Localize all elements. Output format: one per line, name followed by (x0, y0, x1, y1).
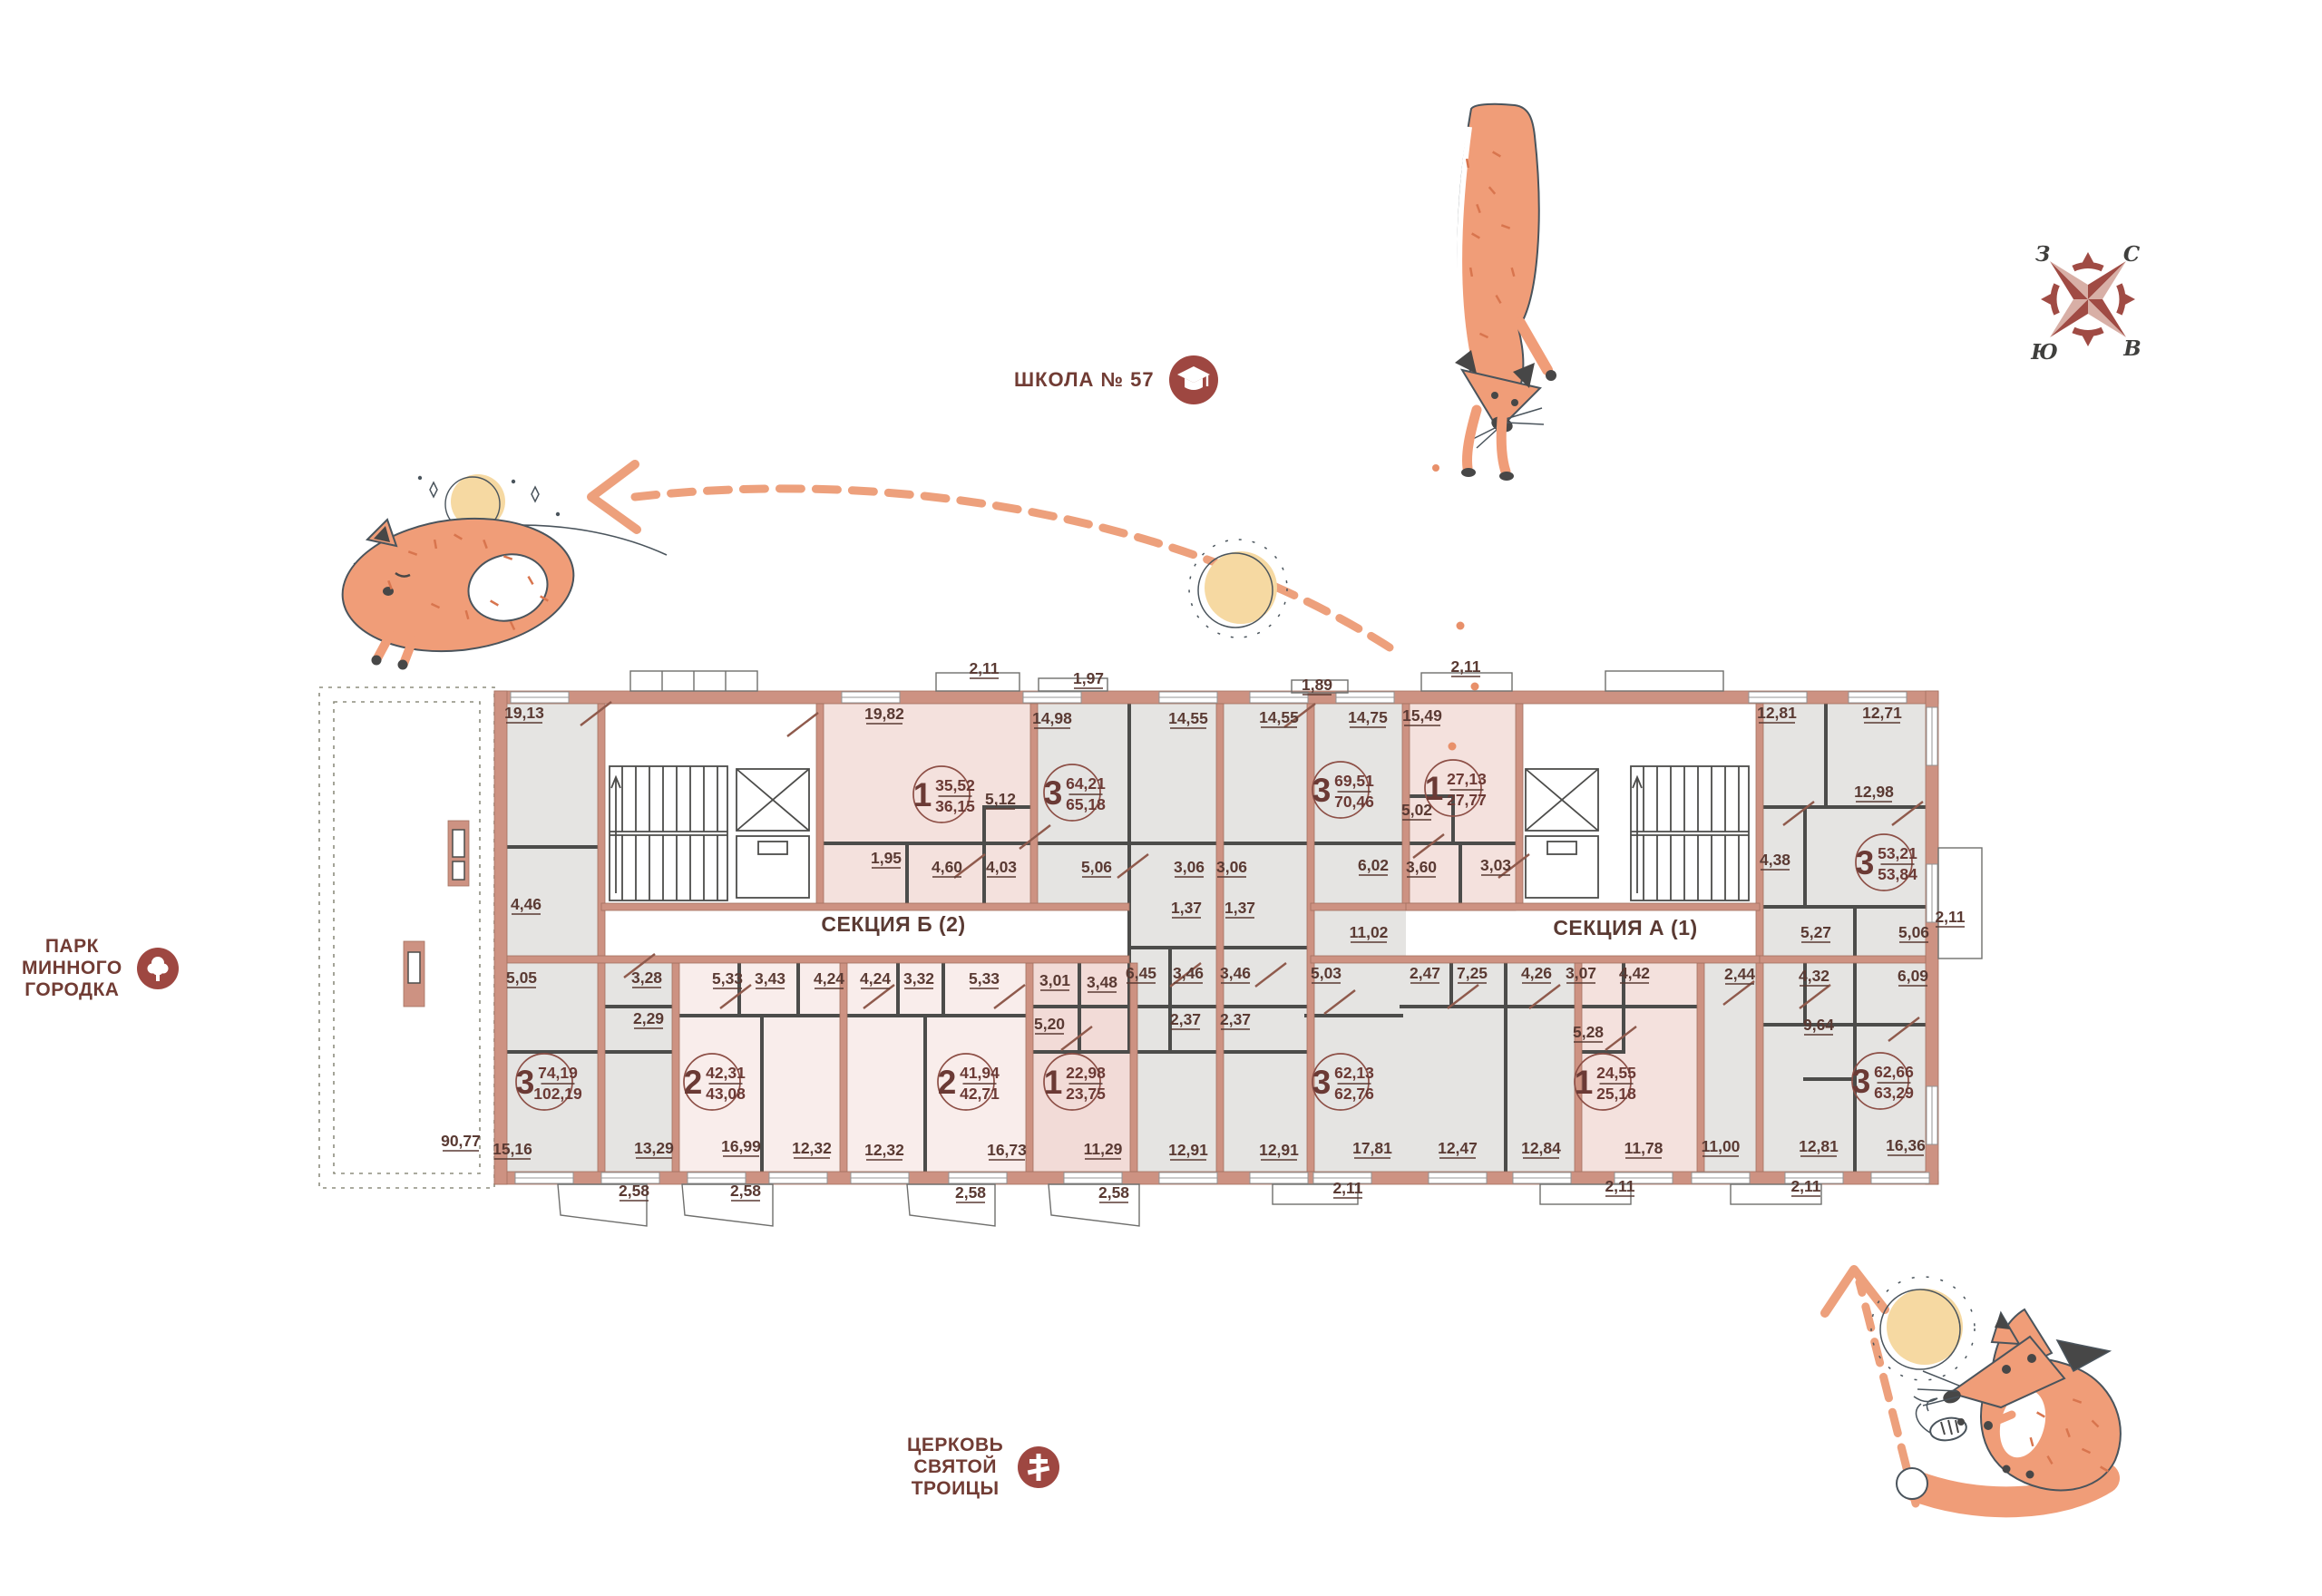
svg-text:62,66: 62,66 (1874, 1063, 1914, 1081)
svg-text:2,58: 2,58 (619, 1182, 649, 1200)
svg-text:2,11: 2,11 (1332, 1179, 1362, 1197)
svg-text:25,18: 25,18 (1596, 1085, 1636, 1103)
svg-text:12,98: 12,98 (1854, 783, 1894, 801)
svg-text:6,45: 6,45 (1126, 964, 1156, 982)
room-area-label: 2,44 (1724, 965, 1755, 984)
svg-text:4,60: 4,60 (932, 858, 962, 876)
tree-icon (137, 948, 179, 989)
svg-text:42,31: 42,31 (706, 1064, 746, 1082)
compass-north-label: С (2123, 242, 2141, 267)
room-area-label: 4,46 (511, 895, 541, 914)
svg-text:16,99: 16,99 (721, 1137, 761, 1155)
svg-text:17,81: 17,81 (1352, 1139, 1392, 1157)
room-area-label: 11,29 (1084, 1140, 1123, 1159)
svg-text:3,01: 3,01 (1039, 971, 1070, 989)
svg-text:3,03: 3,03 (1480, 856, 1511, 874)
room-area-label: 19,13 (504, 704, 544, 723)
room-area-label: 6,09 (1898, 967, 1928, 986)
svg-text:3,28: 3,28 (631, 968, 662, 987)
svg-text:6,02: 6,02 (1358, 856, 1389, 874)
svg-text:42,71: 42,71 (960, 1085, 1000, 1103)
svg-text:14,98: 14,98 (1032, 709, 1072, 727)
room-area-label: 11,02 (1350, 923, 1389, 942)
svg-text:3,60: 3,60 (1406, 858, 1437, 876)
room-area-label: 4,32 (1799, 967, 1829, 986)
room-area-label: 2,37 (1220, 1010, 1251, 1029)
room-area-label: 2,37 (1170, 1010, 1201, 1029)
svg-text:2,44: 2,44 (1724, 965, 1755, 983)
room-area-label: 12,47 (1438, 1139, 1478, 1158)
svg-text:62,13: 62,13 (1334, 1064, 1374, 1082)
svg-text:14,75: 14,75 (1348, 708, 1388, 726)
room-area-label: 5,05 (506, 968, 537, 988)
room-area-label: 5,20 (1034, 1015, 1065, 1034)
svg-text:15,49: 15,49 (1402, 706, 1442, 725)
svg-text:4,38: 4,38 (1760, 851, 1790, 869)
room-area-label: 12,32 (792, 1139, 832, 1158)
svg-text:69,51: 69,51 (1334, 772, 1374, 790)
landmark-school: ШКОЛА № 57 (1014, 355, 1218, 404)
climbing-fox-illustration (1432, 104, 1556, 751)
svg-text:12,71: 12,71 (1862, 704, 1902, 722)
room-area-label: 4,38 (1760, 851, 1790, 870)
room-area-label: 6,45 (1126, 964, 1156, 983)
svg-text:6,09: 6,09 (1898, 967, 1928, 985)
svg-text:1: 1 (1575, 1064, 1594, 1101)
svg-text:2,37: 2,37 (1170, 1010, 1201, 1028)
svg-text:3: 3 (1312, 772, 1332, 809)
svg-text:3,43: 3,43 (755, 969, 785, 988)
room-area-label: 14,98 (1032, 709, 1072, 728)
svg-text:3,07: 3,07 (1566, 964, 1596, 982)
svg-text:5,05: 5,05 (506, 968, 537, 987)
svg-text:3: 3 (1312, 1064, 1332, 1101)
svg-text:2,11: 2,11 (1935, 908, 1965, 926)
room-area-label: 12,81 (1757, 704, 1797, 723)
room-area-label: 3,43 (755, 969, 785, 988)
svg-text:74,19: 74,19 (538, 1064, 578, 1082)
svg-text:36,15: 36,15 (935, 797, 975, 815)
svg-text:19,13: 19,13 (504, 704, 544, 722)
svg-text:14,55: 14,55 (1259, 708, 1299, 726)
room-area-label: 15,49 (1402, 706, 1442, 725)
terrace-column (404, 941, 424, 1007)
floor-plan-page: 19,132,1119,821,9714,9814,5514,551,8914,… (0, 0, 2322, 1596)
compass-south-label: Ю (2030, 340, 2058, 365)
svg-text:1,95: 1,95 (871, 849, 902, 867)
room-area-label: 5,28 (1573, 1023, 1604, 1042)
svg-text:1,37: 1,37 (1171, 899, 1202, 917)
compass-rose: С В Ю З (2030, 242, 2142, 365)
svg-text:13,29: 13,29 (634, 1139, 674, 1157)
svg-text:24,55: 24,55 (1596, 1064, 1636, 1082)
svg-text:35,52: 35,52 (935, 776, 975, 794)
svg-text:5,28: 5,28 (1573, 1023, 1604, 1041)
svg-text:11,02: 11,02 (1350, 923, 1389, 941)
svg-text:3: 3 (1856, 844, 1875, 881)
room-area-label: 2,29 (633, 1009, 664, 1028)
landmark-park: ПАРК МИННОГО ГОРОДКА (22, 936, 179, 1001)
room-area-label: 4,03 (986, 858, 1017, 877)
svg-text:3,48: 3,48 (1087, 973, 1117, 991)
svg-text:2,58: 2,58 (1098, 1183, 1129, 1202)
room-area-label: 4,24 (860, 969, 891, 988)
compass-east-label: В (2122, 336, 2141, 361)
room-area-label: 4,26 (1521, 964, 1552, 983)
svg-text:43,08: 43,08 (706, 1085, 746, 1103)
room-area-label: 3,06 (1216, 858, 1247, 877)
arrowhead-left-icon (591, 464, 637, 530)
room-area-label: 19,82 (864, 705, 904, 724)
room-area-label: 2,11 (1450, 657, 1480, 676)
svg-text:1,37: 1,37 (1224, 899, 1255, 917)
svg-text:5,27: 5,27 (1800, 923, 1831, 941)
room-area-label: 12,91 (1168, 1141, 1208, 1160)
svg-text:11,29: 11,29 (1084, 1140, 1123, 1158)
svg-text:2,58: 2,58 (955, 1183, 986, 1202)
svg-text:5,03: 5,03 (1311, 964, 1341, 982)
route-arrow-to-park (591, 464, 1390, 647)
room-area-label: 16,73 (987, 1141, 1027, 1160)
room-area-label: 14,55 (1259, 708, 1299, 727)
sitting-fox-illustration (1871, 1277, 2121, 1502)
room-area-label: 1,89 (1302, 676, 1332, 695)
sleeping-fox-illustration (335, 474, 667, 670)
room-area-label: 2,11 (1790, 1177, 1820, 1196)
room-area-label: 2,58 (955, 1183, 986, 1202)
room-area-label: 15,16 (493, 1140, 532, 1159)
svg-text:3,06: 3,06 (1174, 858, 1205, 876)
svg-text:16,36: 16,36 (1886, 1136, 1926, 1154)
room-area-label: 3,28 (631, 968, 662, 988)
svg-text:3: 3 (1852, 1063, 1871, 1100)
svg-text:1: 1 (1044, 1064, 1063, 1101)
svg-text:65,18: 65,18 (1066, 795, 1106, 813)
room-area-label: 14,75 (1348, 708, 1388, 727)
svg-text:4,42: 4,42 (1619, 964, 1650, 982)
svg-text:22,98: 22,98 (1066, 1064, 1106, 1082)
svg-text:63,29: 63,29 (1874, 1084, 1914, 1102)
svg-text:1: 1 (1425, 770, 1444, 807)
svg-text:12,32: 12,32 (792, 1139, 832, 1157)
svg-text:2,29: 2,29 (633, 1009, 664, 1027)
room-area-label: 12,71 (1862, 704, 1902, 723)
svg-text:9,64: 9,64 (1803, 1016, 1834, 1034)
room-area-label: 2,47 (1410, 964, 1440, 983)
svg-text:12,81: 12,81 (1799, 1137, 1839, 1155)
compass-west-label: З (2035, 242, 2051, 267)
graduation-cap-icon (1169, 355, 1218, 404)
orthodox-cross-icon (1018, 1446, 1059, 1488)
room-area-label: 12,84 (1521, 1139, 1561, 1158)
svg-text:12,84: 12,84 (1521, 1139, 1561, 1157)
room-area-label: 2,11 (969, 659, 999, 678)
svg-text:27,77: 27,77 (1447, 791, 1487, 809)
room-area-label: 3,46 (1220, 964, 1251, 983)
svg-text:5,33: 5,33 (712, 969, 743, 988)
svg-text:3,46: 3,46 (1173, 964, 1204, 982)
svg-text:5,06: 5,06 (1081, 858, 1112, 876)
svg-text:4,46: 4,46 (511, 895, 541, 913)
room-area-label: 12,32 (864, 1141, 904, 1160)
terrace-column (448, 821, 469, 886)
arrowhead-up-icon (1825, 1270, 1885, 1313)
room-area-label: 1,97 (1073, 669, 1104, 688)
room-area-label: 3,01 (1039, 971, 1070, 990)
svg-text:4,32: 4,32 (1799, 967, 1829, 985)
svg-text:5,12: 5,12 (985, 790, 1016, 808)
room-area-label: 5,33 (712, 969, 743, 988)
room-area-label: 14,55 (1168, 709, 1208, 728)
svg-text:23,75: 23,75 (1066, 1085, 1106, 1103)
svg-text:62,76: 62,76 (1334, 1085, 1374, 1103)
room-area-label: 2,58 (730, 1182, 761, 1201)
room-area-label: 16,99 (721, 1137, 761, 1156)
svg-text:53,84: 53,84 (1878, 865, 1917, 883)
svg-text:5,20: 5,20 (1034, 1015, 1065, 1033)
svg-text:4,03: 4,03 (986, 858, 1017, 876)
svg-text:12,81: 12,81 (1757, 704, 1797, 722)
room-area-label: 1,37 (1224, 899, 1255, 918)
room-area-label: 9,64 (1803, 1016, 1834, 1035)
svg-text:14,55: 14,55 (1168, 709, 1208, 727)
svg-text:19,82: 19,82 (864, 705, 904, 723)
svg-text:3: 3 (1044, 774, 1063, 812)
school-label: ШКОЛА № 57 (1014, 369, 1155, 391)
svg-text:15,16: 15,16 (493, 1140, 532, 1158)
svg-text:3: 3 (516, 1064, 535, 1101)
room-area-label: 2,58 (1098, 1183, 1129, 1202)
svg-text:1,89: 1,89 (1302, 676, 1332, 694)
svg-text:2,58: 2,58 (730, 1182, 761, 1200)
svg-text:53,21: 53,21 (1878, 844, 1917, 862)
svg-text:2: 2 (684, 1064, 703, 1101)
svg-text:5,06: 5,06 (1898, 923, 1929, 941)
room-area-label: 4,24 (814, 969, 844, 988)
room-area-label: 11,78 (1624, 1139, 1663, 1158)
room-area-label: 3,07 (1566, 964, 1596, 983)
svg-text:12,91: 12,91 (1168, 1141, 1208, 1159)
svg-text:2: 2 (938, 1064, 957, 1101)
svg-text:5,33: 5,33 (969, 969, 1000, 988)
room-area-label: 13,29 (634, 1139, 674, 1158)
room-area-label: 7,25 (1457, 964, 1488, 983)
room-area-label: 5,12 (985, 790, 1016, 809)
room-area-label: 1,37 (1171, 899, 1202, 918)
svg-text:2,47: 2,47 (1410, 964, 1440, 982)
svg-text:27,13: 27,13 (1447, 770, 1487, 788)
room-area-label: 2,11 (1935, 908, 1965, 927)
svg-text:4,24: 4,24 (860, 969, 891, 988)
room-area-label: 5,33 (969, 969, 1000, 988)
sun-illustration-middle (1189, 540, 1287, 637)
room-area-label: 3,06 (1174, 858, 1205, 877)
room-area-label: 5,06 (1081, 858, 1112, 877)
svg-text:102,19: 102,19 (533, 1085, 582, 1103)
room-area-label: 4,42 (1619, 964, 1650, 983)
svg-text:64,21: 64,21 (1066, 774, 1106, 793)
svg-text:3,32: 3,32 (903, 969, 934, 988)
svg-text:4,24: 4,24 (814, 969, 844, 988)
room-area-label: 3,32 (903, 969, 934, 988)
floor-plan-drawing: 19,132,1119,821,9714,9814,5514,551,8914,… (0, 0, 2322, 1596)
svg-text:1,97: 1,97 (1073, 669, 1104, 687)
room-area-label: 17,81 (1352, 1139, 1392, 1158)
section-label: СЕКЦИЯ А (1) (1553, 916, 1697, 939)
svg-text:3,46: 3,46 (1220, 964, 1251, 982)
room-area-label: 5,06 (1898, 923, 1929, 942)
room-area-label: 12,91 (1259, 1141, 1299, 1160)
svg-text:2,11: 2,11 (1605, 1177, 1634, 1195)
section-label: СЕКЦИЯ Б (2) (821, 912, 965, 936)
room-area-label: 5,27 (1800, 923, 1831, 942)
room-area-label: 3,46 (1173, 964, 1204, 983)
room-area-label: 3,60 (1406, 858, 1437, 877)
room-area-label: 90,77 (441, 1132, 481, 1151)
room-area-label: 2,11 (1332, 1179, 1362, 1198)
svg-text:2,11: 2,11 (1450, 657, 1480, 676)
room-area-label: 6,02 (1358, 856, 1389, 875)
room-area-label: 11,00 (1702, 1137, 1741, 1156)
room-area-label: 12,81 (1799, 1137, 1839, 1156)
svg-text:12,91: 12,91 (1259, 1141, 1299, 1159)
park-label: ПАРК МИННОГО ГОРОДКА (22, 936, 122, 1001)
svg-text:3,06: 3,06 (1216, 858, 1247, 876)
landmark-church: ЦЕРКОВЬ СВЯТОЙ ТРОИЦЫ (907, 1435, 1059, 1500)
svg-text:7,25: 7,25 (1457, 964, 1488, 982)
svg-text:12,47: 12,47 (1438, 1139, 1478, 1157)
svg-text:2,37: 2,37 (1220, 1010, 1251, 1028)
svg-text:4,26: 4,26 (1521, 964, 1552, 982)
svg-text:41,94: 41,94 (960, 1064, 1000, 1082)
room-area-label: 3,48 (1087, 973, 1117, 992)
room-area-label: 2,11 (1605, 1177, 1634, 1196)
terrace (319, 687, 494, 1188)
svg-text:11,78: 11,78 (1624, 1139, 1663, 1157)
church-label: ЦЕРКОВЬ СВЯТОЙ ТРОИЦЫ (907, 1435, 1003, 1500)
svg-text:16,73: 16,73 (987, 1141, 1027, 1159)
room-area-label: 5,03 (1311, 964, 1341, 983)
svg-text:1: 1 (913, 776, 932, 813)
room-area-label: 3,03 (1480, 856, 1511, 875)
svg-text:12,32: 12,32 (864, 1141, 904, 1159)
room-area-label: 16,36 (1886, 1136, 1926, 1155)
room-area-label: 4,60 (932, 858, 962, 877)
svg-text:2,11: 2,11 (969, 659, 999, 677)
room-area-label: 1,95 (871, 849, 902, 868)
svg-text:11,00: 11,00 (1702, 1137, 1741, 1155)
svg-text:90,77: 90,77 (441, 1132, 481, 1150)
room-area-label: 2,58 (619, 1182, 649, 1201)
svg-text:2,11: 2,11 (1790, 1177, 1820, 1195)
room-area-label: 12,98 (1854, 783, 1894, 802)
svg-text:70,46: 70,46 (1334, 793, 1374, 811)
